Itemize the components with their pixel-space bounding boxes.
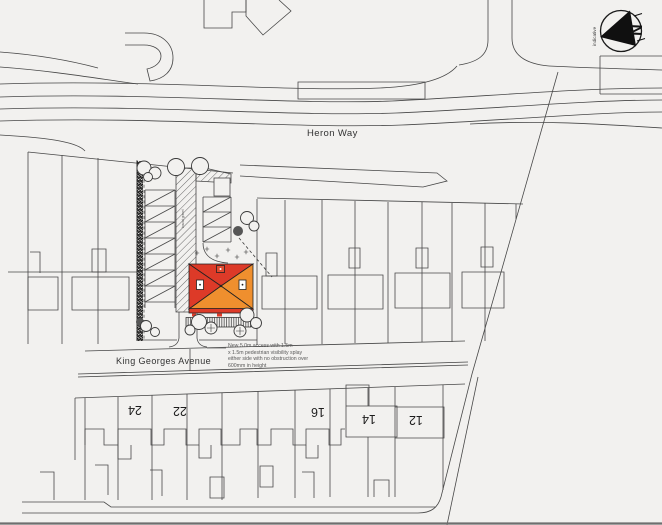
access-annotation-line: 600mm in height <box>228 363 308 370</box>
roof-apex-point <box>220 285 222 287</box>
planting-marks <box>195 247 248 259</box>
house-number-24: 24 <box>128 403 142 417</box>
access-annotation: New 5.0m access with 1.5m x 1.5m pedestr… <box>228 343 308 369</box>
king-georges-avenue-label: King Georges Avenue <box>116 356 211 366</box>
access-annotation-line: either side with no obstruction over <box>228 356 308 363</box>
access-annotation-line: x 1.5m pedestrian visibility splay <box>228 350 308 357</box>
site-plan-canvas: Heron Way King Georges Avenue New 5.0m a… <box>0 0 662 525</box>
house-number-16: 16 <box>311 405 325 419</box>
access-annotation-line: New 5.0m access with 1.5m <box>228 343 308 350</box>
parking-bays-west <box>145 190 175 308</box>
house-number-14: 14 <box>362 412 376 426</box>
buildings-north <box>125 0 662 99</box>
site-boundary <box>22 72 558 525</box>
hedge-strip <box>137 161 144 341</box>
plan-linework <box>0 0 662 525</box>
plots-east <box>257 198 523 345</box>
shrub-dark <box>233 226 243 236</box>
houses-south <box>40 385 444 500</box>
house-number-22: 22 <box>173 404 187 418</box>
house-fronts <box>85 429 345 445</box>
north-letter: N <box>625 24 644 36</box>
heron-way-label: Heron Way <box>307 128 358 139</box>
drive-surface-label: bound gravel <box>181 210 185 228</box>
house-number-12: 12 <box>409 413 423 427</box>
garage-outline <box>214 178 230 196</box>
outbuildings <box>40 465 314 500</box>
north-indicative-note: indicative <box>592 27 597 46</box>
